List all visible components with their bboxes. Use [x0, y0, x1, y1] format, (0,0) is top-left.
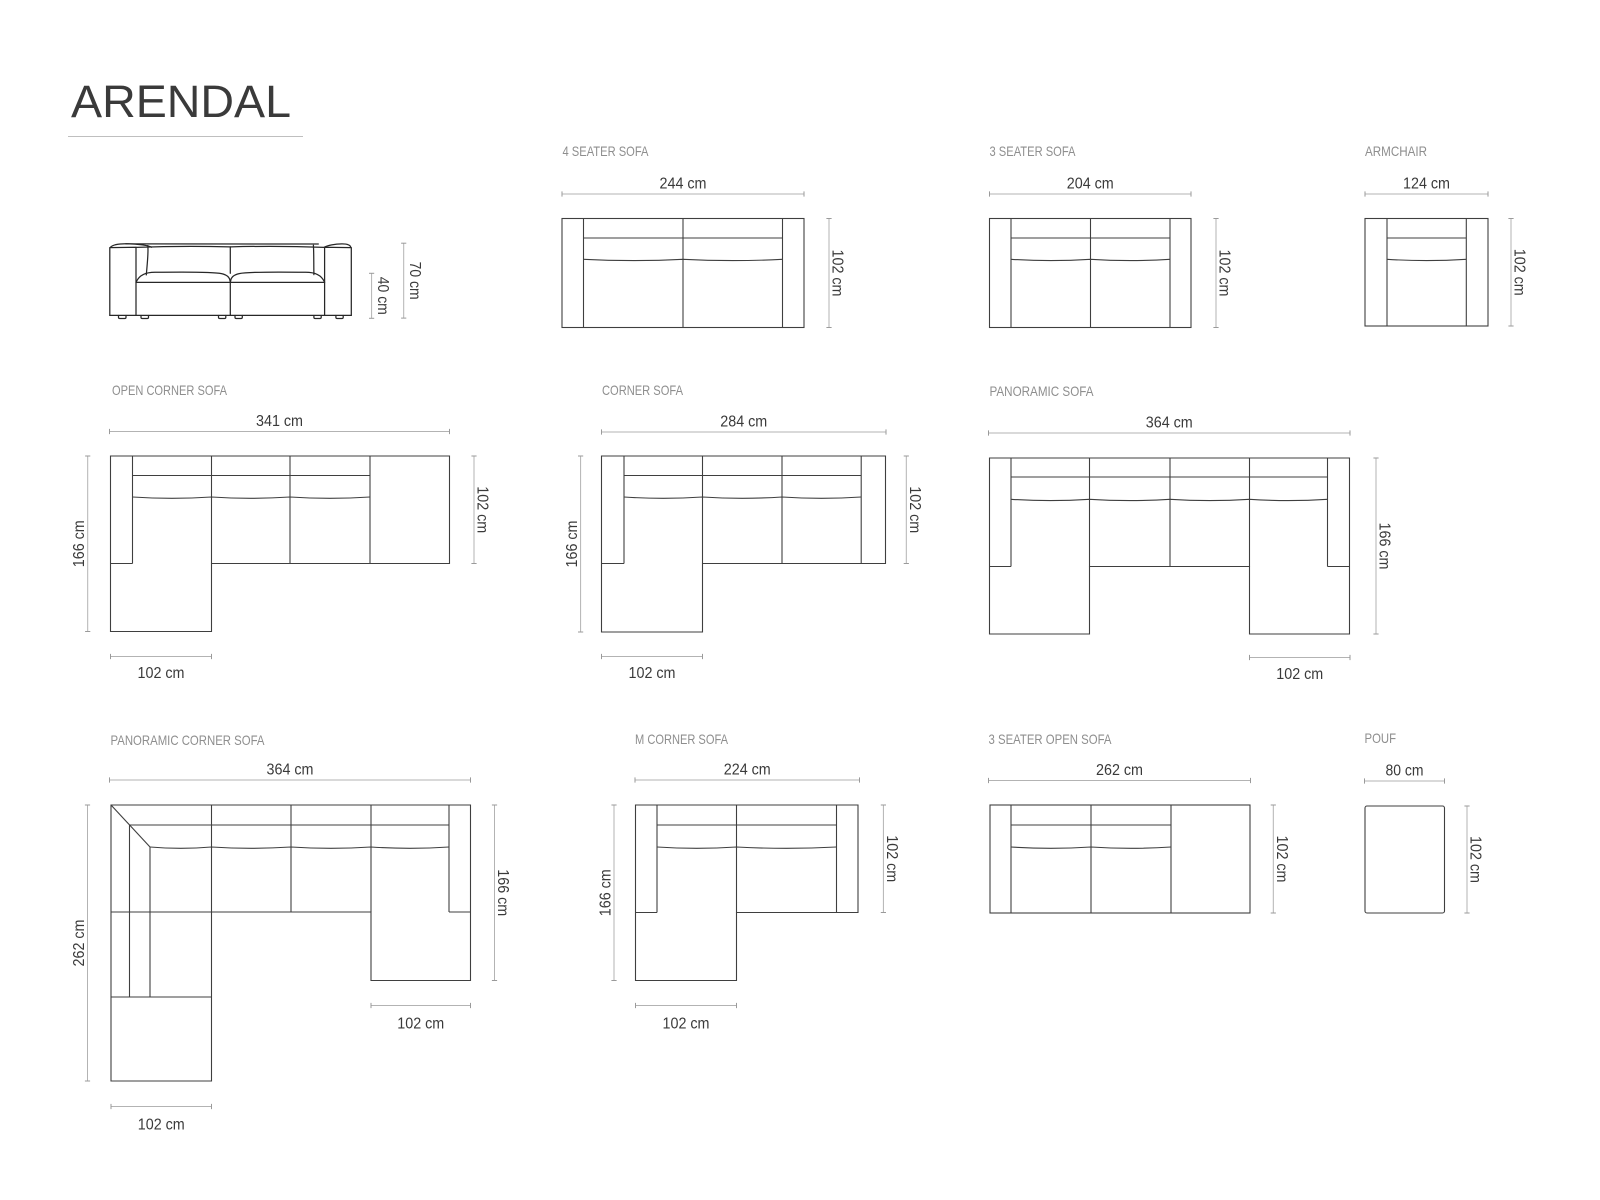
- svg-text:262 cm: 262 cm: [1096, 762, 1143, 779]
- svg-text:102 cm: 102 cm: [829, 250, 846, 297]
- svg-text:102 cm: 102 cm: [397, 1016, 444, 1033]
- svg-text:80 cm: 80 cm: [1386, 763, 1424, 780]
- svg-text:102 cm: 102 cm: [474, 486, 491, 533]
- svg-text:ARENDAL: ARENDAL: [71, 76, 291, 127]
- svg-text:341 cm: 341 cm: [256, 413, 303, 430]
- svg-text:4 SEATER SOFA: 4 SEATER SOFA: [563, 144, 650, 159]
- svg-text:PANORAMIC SOFA: PANORAMIC SOFA: [990, 384, 1095, 399]
- svg-text:166 cm: 166 cm: [1376, 523, 1393, 570]
- svg-text:224 cm: 224 cm: [724, 762, 771, 779]
- svg-text:102 cm: 102 cm: [138, 665, 185, 682]
- svg-text:102 cm: 102 cm: [663, 1016, 710, 1033]
- svg-text:102 cm: 102 cm: [1276, 666, 1323, 683]
- svg-text:284 cm: 284 cm: [720, 414, 767, 431]
- svg-text:3 SEATER OPEN SOFA: 3 SEATER OPEN SOFA: [989, 732, 1113, 747]
- svg-text:204 cm: 204 cm: [1067, 176, 1114, 193]
- svg-text:166 cm: 166 cm: [71, 520, 88, 567]
- svg-text:102 cm: 102 cm: [1273, 836, 1290, 883]
- svg-text:70 cm: 70 cm: [406, 262, 423, 300]
- svg-text:364 cm: 364 cm: [1146, 415, 1193, 432]
- svg-text:ARMCHAIR: ARMCHAIR: [1365, 144, 1427, 159]
- svg-text:364 cm: 364 cm: [267, 762, 314, 779]
- svg-text:102 cm: 102 cm: [1216, 250, 1233, 297]
- svg-text:OPEN CORNER SOFA: OPEN CORNER SOFA: [112, 383, 228, 398]
- svg-text:262 cm: 262 cm: [71, 920, 88, 967]
- svg-text:CORNER SOFA: CORNER SOFA: [602, 383, 684, 398]
- svg-text:102 cm: 102 cm: [883, 835, 900, 882]
- svg-text:POUF: POUF: [1365, 731, 1397, 746]
- svg-text:102 cm: 102 cm: [906, 486, 923, 533]
- svg-text:166 cm: 166 cm: [598, 869, 615, 916]
- svg-text:102 cm: 102 cm: [629, 665, 676, 682]
- svg-text:166 cm: 166 cm: [494, 869, 511, 916]
- svg-text:40 cm: 40 cm: [374, 277, 391, 315]
- svg-text:102 cm: 102 cm: [1511, 249, 1528, 296]
- svg-text:M CORNER SOFA: M CORNER SOFA: [635, 732, 729, 747]
- svg-text:3 SEATER SOFA: 3 SEATER SOFA: [990, 144, 1077, 159]
- svg-text:102 cm: 102 cm: [138, 1117, 185, 1134]
- svg-text:102 cm: 102 cm: [1467, 836, 1484, 883]
- svg-text:124 cm: 124 cm: [1403, 176, 1450, 193]
- svg-text:PANORAMIC CORNER SOFA: PANORAMIC CORNER SOFA: [111, 733, 266, 748]
- svg-text:244 cm: 244 cm: [660, 176, 707, 193]
- svg-text:166 cm: 166 cm: [564, 521, 581, 568]
